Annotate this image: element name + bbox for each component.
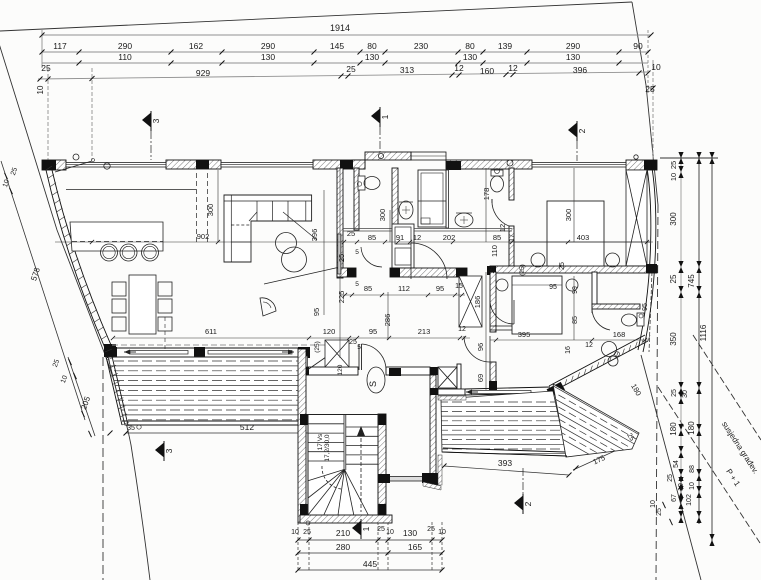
- svg-text:139: 139: [498, 41, 512, 51]
- svg-text:300: 300: [206, 204, 215, 217]
- svg-text:110: 110: [490, 245, 499, 257]
- svg-text:88: 88: [689, 465, 696, 473]
- svg-text:91: 91: [396, 233, 404, 242]
- svg-text:12: 12: [413, 233, 421, 242]
- svg-text:25: 25: [669, 274, 678, 283]
- svg-text:117: 117: [53, 41, 67, 51]
- svg-text:213: 213: [418, 327, 431, 336]
- svg-text:286: 286: [383, 314, 392, 327]
- svg-text:25: 25: [559, 262, 566, 270]
- svg-text:3: 3: [151, 118, 161, 123]
- svg-text:85: 85: [364, 284, 372, 293]
- svg-text:25: 25: [656, 508, 663, 516]
- svg-text:95: 95: [549, 284, 557, 291]
- svg-text:350: 350: [669, 332, 678, 346]
- svg-text:10: 10: [651, 62, 661, 72]
- svg-text:160: 160: [480, 66, 494, 76]
- svg-text:1: 1: [361, 526, 371, 531]
- svg-text:25: 25: [667, 474, 674, 482]
- svg-text:120: 120: [323, 327, 336, 336]
- svg-text:10: 10: [291, 529, 299, 536]
- svg-text:S: S: [368, 381, 378, 387]
- svg-text:162: 162: [189, 41, 203, 51]
- svg-text:120: 120: [337, 364, 344, 375]
- svg-text:395: 395: [518, 330, 531, 339]
- svg-text:10: 10: [438, 529, 446, 536]
- svg-text:1914: 1914: [330, 23, 350, 33]
- svg-text:17 Vs: 17 Vs: [317, 433, 324, 450]
- svg-text:25: 25: [346, 64, 356, 74]
- svg-text:145: 145: [330, 41, 344, 51]
- svg-text:16: 16: [565, 346, 572, 354]
- svg-text:396: 396: [310, 229, 319, 242]
- svg-text:5: 5: [355, 249, 359, 256]
- svg-text:25: 25: [669, 161, 678, 169]
- svg-text:300: 300: [669, 212, 678, 226]
- svg-text:290: 290: [566, 41, 580, 51]
- svg-text:69: 69: [476, 374, 485, 382]
- svg-text:280: 280: [336, 542, 350, 552]
- svg-text:15: 15: [455, 283, 463, 290]
- svg-text:3: 3: [164, 448, 174, 453]
- svg-text:130: 130: [261, 52, 275, 62]
- svg-text:2: 2: [577, 128, 587, 133]
- svg-text:(25): (25): [314, 341, 321, 353]
- svg-text:12: 12: [508, 63, 518, 73]
- svg-text:95: 95: [642, 303, 649, 311]
- svg-text:130: 130: [463, 52, 477, 62]
- svg-text:300: 300: [564, 209, 573, 222]
- svg-text:10: 10: [678, 483, 685, 491]
- svg-text:5: 5: [355, 281, 359, 288]
- svg-text:202: 202: [443, 233, 456, 242]
- svg-text:393: 393: [498, 458, 512, 468]
- svg-text:25: 25: [41, 63, 51, 73]
- svg-text:80: 80: [367, 41, 377, 51]
- svg-text:168: 168: [613, 330, 626, 339]
- svg-text:25: 25: [303, 529, 311, 536]
- svg-text:25: 25: [427, 526, 435, 533]
- svg-text:445: 445: [363, 559, 377, 569]
- svg-text:85: 85: [368, 233, 376, 242]
- svg-text:85: 85: [572, 316, 579, 324]
- svg-text:130: 130: [566, 52, 580, 62]
- svg-text:230: 230: [414, 41, 428, 51]
- svg-text:929: 929: [196, 68, 210, 78]
- svg-text:396: 396: [573, 65, 587, 75]
- svg-text:25: 25: [347, 229, 355, 238]
- svg-text:96: 96: [476, 343, 485, 351]
- svg-text:112: 112: [398, 284, 410, 293]
- svg-text:130: 130: [365, 52, 379, 62]
- svg-text:10: 10: [36, 85, 45, 94]
- svg-text:25: 25: [377, 526, 385, 533]
- svg-text:102: 102: [686, 494, 693, 506]
- svg-text:2: 2: [523, 501, 533, 506]
- svg-text:5: 5: [357, 344, 361, 351]
- svg-text:1: 1: [380, 114, 390, 119]
- svg-text:12: 12: [585, 342, 593, 349]
- svg-text:10: 10: [689, 482, 696, 490]
- svg-text:178: 178: [482, 188, 491, 201]
- svg-text:17: 17: [509, 234, 516, 242]
- svg-text:35: 35: [127, 425, 135, 432]
- svg-text:30: 30: [682, 390, 689, 398]
- svg-text:25: 25: [349, 339, 357, 346]
- svg-text:80: 80: [465, 41, 475, 51]
- svg-text:10: 10: [650, 500, 657, 508]
- svg-text:403: 403: [577, 233, 590, 242]
- svg-text:99: 99: [572, 286, 579, 294]
- svg-text:12: 12: [498, 224, 507, 232]
- svg-text:290: 290: [118, 41, 132, 51]
- svg-text:12: 12: [454, 63, 464, 73]
- svg-text:25: 25: [671, 389, 678, 397]
- svg-text:10: 10: [669, 173, 678, 181]
- svg-text:25: 25: [645, 84, 655, 94]
- svg-text:300: 300: [378, 209, 387, 222]
- svg-text:180: 180: [687, 421, 696, 435]
- svg-text:85: 85: [493, 233, 501, 242]
- svg-text:67: 67: [671, 494, 678, 502]
- svg-text:25: 25: [337, 254, 346, 262]
- svg-text:12: 12: [458, 326, 466, 333]
- svg-text:902: 902: [197, 232, 210, 241]
- svg-text:210: 210: [336, 528, 350, 538]
- svg-text:110: 110: [118, 52, 132, 62]
- svg-text:10: 10: [386, 529, 394, 536]
- svg-text:745: 745: [687, 274, 696, 288]
- svg-text:95: 95: [312, 308, 321, 316]
- svg-text:54: 54: [673, 460, 680, 468]
- svg-text:95: 95: [436, 284, 444, 293]
- svg-text:130: 130: [403, 528, 417, 538]
- svg-text:225: 225: [337, 291, 346, 304]
- svg-text:95: 95: [369, 327, 377, 336]
- svg-text:25: 25: [489, 266, 496, 274]
- svg-text:290: 290: [261, 41, 275, 51]
- svg-text:180: 180: [669, 422, 678, 436]
- svg-text:1116: 1116: [699, 324, 708, 341]
- svg-text:165: 165: [408, 542, 422, 552]
- svg-text:313: 313: [400, 65, 414, 75]
- svg-text:17,2/30,0: 17,2/30,0: [324, 434, 331, 461]
- svg-text:90: 90: [633, 41, 643, 51]
- svg-text:611: 611: [205, 327, 217, 336]
- svg-text:(25): (25): [519, 264, 526, 276]
- svg-text:186: 186: [473, 296, 482, 309]
